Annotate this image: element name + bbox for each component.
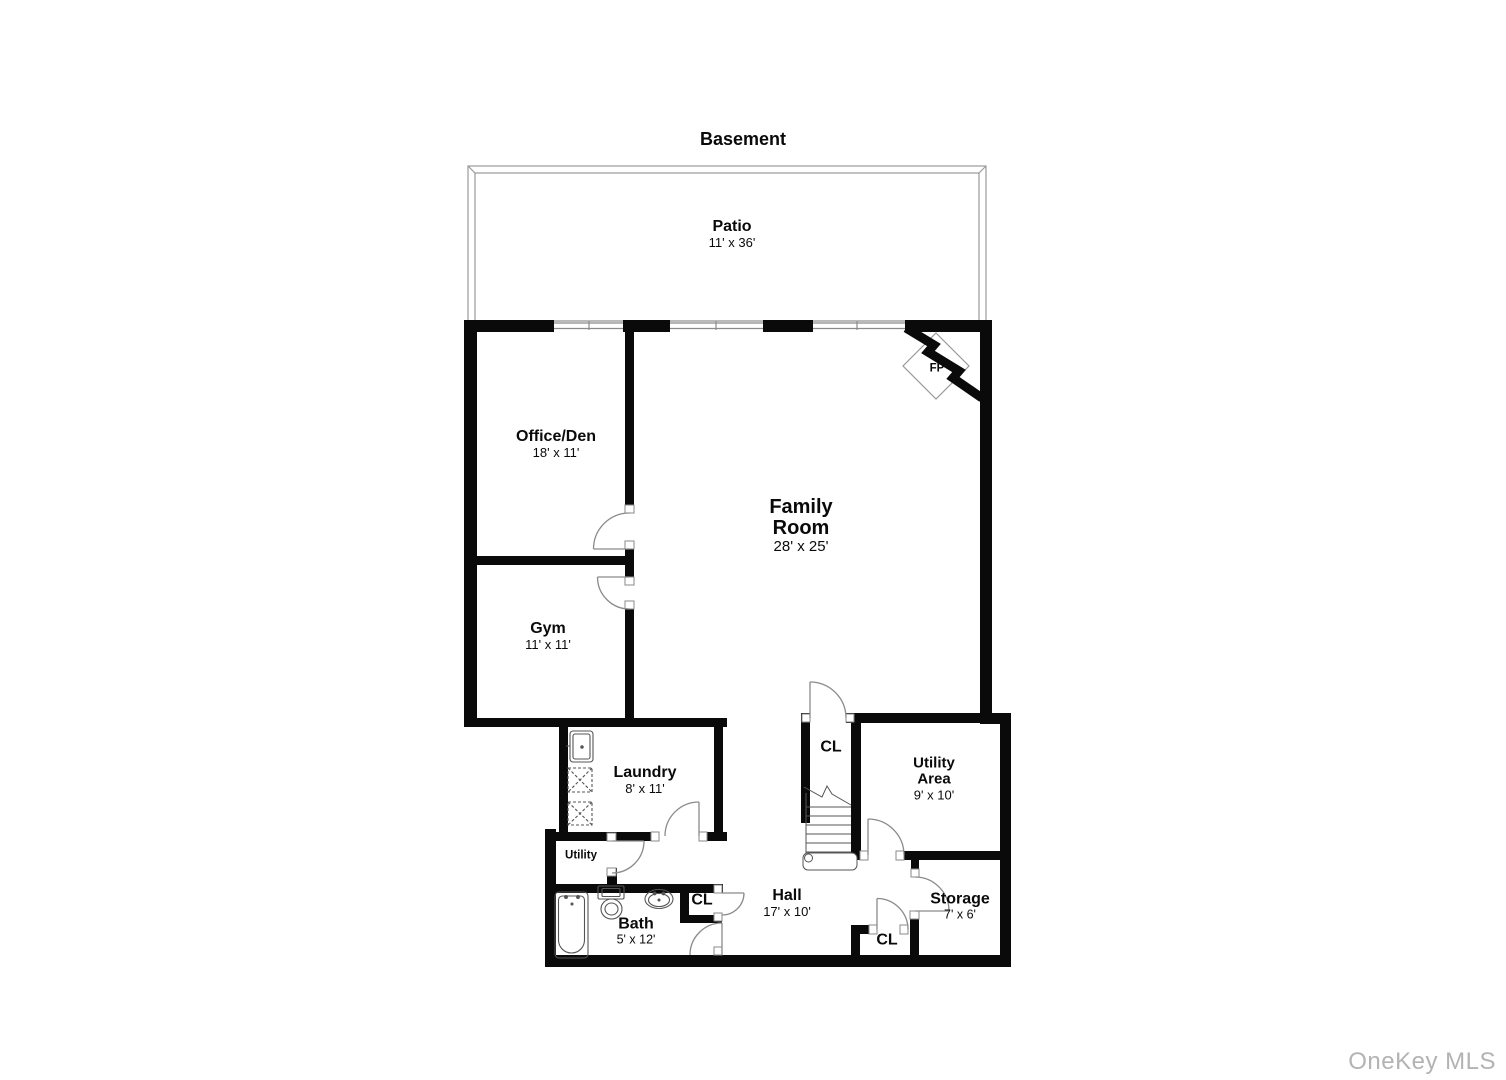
- patio-corner-tick-left: [468, 166, 475, 173]
- room-dims-utility-area: 9' x 10': [897, 788, 971, 803]
- room-dims-laundry: 8' x 11': [613, 781, 676, 796]
- dryer-box: [568, 802, 592, 825]
- wall-upper-right-top: [846, 713, 1011, 723]
- room-name-laundry: Laundry: [613, 764, 676, 781]
- room-dims-office-den: 18' x 11': [516, 445, 596, 460]
- wall-laundry-left: [559, 718, 568, 836]
- door-laundry: [665, 802, 699, 836]
- patio-corner-tick-right: [979, 166, 986, 173]
- room-label-closet-bath: CL: [691, 892, 712, 909]
- wall-laundry-right: [714, 718, 723, 836]
- wall-gym-right-lower: [625, 609, 634, 727]
- stairs-newel: [805, 854, 813, 862]
- stairs: [803, 786, 857, 870]
- door-office-den: [594, 513, 630, 549]
- room-label-closet-hall: CL: [876, 932, 897, 949]
- wall-office-gym-junction: [625, 549, 634, 577]
- wall-exterior-right-family: [980, 320, 992, 715]
- room-name-gym: Gym: [525, 620, 571, 637]
- wall-bottom: [545, 955, 1011, 967]
- door-utility-area: [868, 819, 904, 855]
- room-label-patio: Patio 11' x 36': [709, 218, 756, 250]
- laundry-sink: [566, 731, 593, 762]
- room-dims-family-room: 28' x 25': [745, 539, 857, 555]
- room-label-laundry: Laundry 8' x 11': [613, 764, 676, 796]
- room-label-utility-room: Utility: [565, 850, 597, 863]
- window-3: [813, 322, 905, 331]
- stairs-break-line: [804, 786, 851, 805]
- wall-block-left: [545, 829, 556, 967]
- wall-top-segment-1: [464, 320, 554, 332]
- wall-utility-bottom-right: [904, 851, 1011, 860]
- room-name-office-den: Office/Den: [516, 428, 596, 445]
- room-label-bath: Bath 5' x 12': [617, 916, 656, 947]
- room-label-hall: Hall 17' x 10': [763, 887, 811, 919]
- room-dims-hall: 17' x 10': [763, 904, 811, 919]
- room-label-storage: Storage 7' x 6': [930, 891, 990, 922]
- room-dims-gym: 11' x 11': [525, 637, 571, 652]
- wall-laundry-bottom-left: [545, 832, 659, 841]
- room-name-utility-area: Utility Area: [897, 756, 971, 788]
- door-closet-upper: [810, 682, 846, 718]
- wall-exterior-left: [464, 320, 477, 727]
- floorplan-canvas: Basement Patio 11' x 36' Office/Den 18' …: [0, 0, 1506, 1080]
- room-label-fireplace: FP: [930, 363, 945, 376]
- wall-gym-bottom-laundry-top: [464, 718, 727, 727]
- room-dims-bath: 5' x 12': [617, 933, 656, 947]
- plan-title: Basement: [700, 130, 786, 150]
- room-label-family-room: Family Room 28' x 25': [745, 497, 857, 555]
- room-name-family-room: Family Room: [745, 497, 857, 539]
- window-1: [554, 322, 623, 331]
- washer-box: [568, 768, 592, 792]
- room-name-bath: Bath: [617, 916, 656, 933]
- watermark: OneKey MLS: [1348, 1048, 1496, 1076]
- room-label-closet-upper: CL: [820, 739, 841, 756]
- bathtub: [555, 892, 588, 958]
- window-2: [670, 322, 763, 331]
- room-name-storage: Storage: [930, 891, 990, 908]
- wall-office-right-upper: [625, 320, 634, 513]
- room-name-patio: Patio: [709, 218, 756, 235]
- room-dims-storage: 7' x 6': [930, 908, 990, 922]
- wall-stairs-utility-divider: [851, 713, 861, 856]
- wall-block-right: [1000, 713, 1011, 967]
- wall-top-segment-3: [763, 320, 813, 332]
- room-label-utility-area: Utility Area 9' x 10': [897, 756, 971, 803]
- windows: [554, 322, 905, 331]
- room-dims-patio: 11' x 36': [709, 235, 756, 250]
- wall-office-gym-divider: [464, 556, 634, 565]
- room-label-office-den: Office/Den 18' x 11': [516, 428, 596, 460]
- door-closet-bath: [722, 893, 744, 915]
- laundry-fixtures: [566, 731, 593, 825]
- room-label-gym: Gym 11' x 11': [525, 620, 571, 652]
- room-name-hall: Hall: [763, 887, 811, 904]
